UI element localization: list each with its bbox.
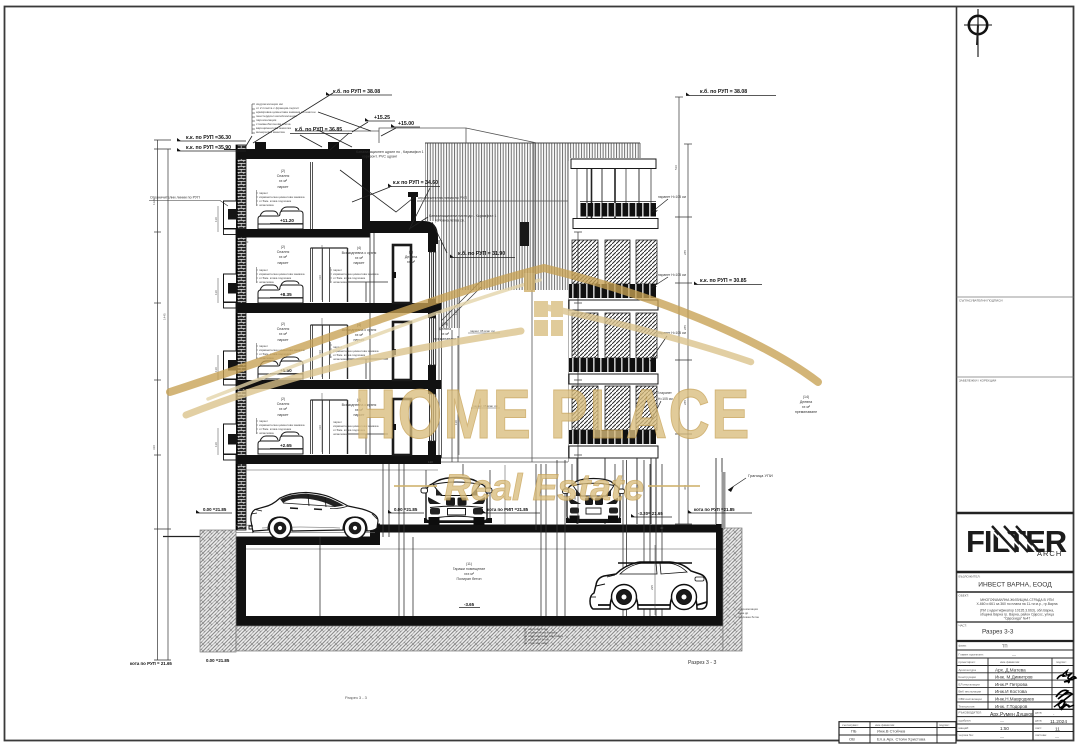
svg-text:—: — <box>1012 652 1016 657</box>
svg-text:съгласувал:: съгласувал: <box>842 723 859 727</box>
svg-text:ВиК инсталации: ВиК инсталации <box>959 690 982 694</box>
svg-text:(14): (14) <box>442 322 448 326</box>
svg-text:условна летва св.: условна летва св. <box>435 219 465 223</box>
svg-text:к.к. по РУП = 30.85: к.к. по РУП = 30.85 <box>700 278 747 284</box>
svg-text:110: 110 <box>454 310 458 315</box>
svg-text:Граница УПИ: Граница УПИ <box>748 473 773 478</box>
svg-text:ИНВЕСТ ВАРНА, ЕООД: ИНВЕСТ ВАРНА, ЕООД <box>978 582 1052 589</box>
svg-text:+2.65: +2.65 <box>280 443 292 448</box>
svg-text:Канализационни листи до - Кара: Канализационни листи до - Карамфил 1 <box>429 214 496 218</box>
svg-text:дата:: дата: <box>1035 711 1042 715</box>
svg-text:1:50: 1:50 <box>1000 726 1009 731</box>
svg-text:лист:: лист: <box>1035 726 1042 730</box>
svg-text:310: 310 <box>318 275 322 280</box>
svg-text:285: 285 <box>683 250 687 255</box>
svg-text:хх м²: хх м² <box>279 179 288 183</box>
svg-text:—: — <box>1000 719 1004 724</box>
svg-text:листове:: листове: <box>1035 733 1047 737</box>
svg-text:Канализационен щранг по , Кара: Канализационен щранг по , Карамфил 1 <box>356 150 424 154</box>
svg-text:110: 110 <box>214 290 218 295</box>
svg-text:хоризонт. PVC щранг: хоризонт. PVC щранг <box>362 155 398 159</box>
svg-text:подпис:: подпис: <box>939 723 950 727</box>
svg-text:к.б. по РУП = 38.08: к.б. по РУП = 38.08 <box>333 88 380 95</box>
svg-text:(4): (4) <box>409 250 413 254</box>
svg-text:(2): (2) <box>281 169 285 173</box>
svg-text:хх м²: хх м² <box>407 260 416 264</box>
svg-text:кота по РУП =21.85: кота по РУП =21.85 <box>694 507 735 512</box>
svg-text:парапет Н=105 см: парапет Н=105 см <box>658 195 687 199</box>
svg-text:к.б. по РУП = 38.08: к.б. по РУП = 38.08 <box>700 88 747 95</box>
svg-text:Инж.Р Петрова: Инж.Р Петрова <box>995 682 1028 687</box>
svg-text:+15.25: +15.25 <box>374 115 390 121</box>
svg-text:+15.00: +15.00 <box>398 121 414 127</box>
svg-text:310: 310 <box>152 445 156 450</box>
svg-text:кота по РУП = 21.65: кота по РУП = 21.65 <box>130 661 172 666</box>
svg-text:име фамилия:: име фамилия: <box>1000 660 1020 664</box>
svg-text:Инж. М.Димитров: Инж. М.Димитров <box>995 675 1033 680</box>
svg-text:HOME PLACE: HOME PLACE <box>355 375 751 453</box>
svg-text:шпакловка: шпакловка <box>333 280 348 284</box>
svg-text:подпис:: подпис: <box>1056 660 1067 664</box>
svg-text:Полиран бетон: Полиран бетон <box>456 577 481 581</box>
svg-text:фаза:: фаза: <box>959 644 967 648</box>
svg-text:Спалня: Спалня <box>277 174 290 178</box>
svg-text:110: 110 <box>214 217 218 222</box>
svg-text:-3.20= 21.65: -3.20= 21.65 <box>638 511 663 516</box>
svg-text:"Одесеида" №47: "Одесеида" №47 <box>1004 617 1031 621</box>
svg-text:40: 40 <box>660 526 664 530</box>
svg-text:Конструкции: Конструкции <box>959 675 977 679</box>
svg-text:285: 285 <box>573 350 577 355</box>
svg-text:уплътнен насип: уплътнен насип <box>528 641 549 645</box>
svg-text:к.к. по РУП =36.30: к.к. по РУП =36.30 <box>186 135 231 141</box>
svg-text:0.00 =21.85: 0.00 =21.85 <box>206 658 230 663</box>
svg-text:к.к по РУП = 34.60: к.к по РУП = 34.60 <box>393 180 438 186</box>
svg-text:преминаване: преминаване <box>795 410 817 414</box>
svg-text:Всекидневна с кухня: Всекидневна с кухня <box>342 251 377 255</box>
svg-text:—: — <box>1055 735 1059 740</box>
svg-text:проектирал:: проектирал: <box>959 660 976 664</box>
svg-text:Инж.В Стойчев: Инж.В Стойчев <box>877 729 905 734</box>
svg-text:310: 310 <box>318 425 322 430</box>
svg-text:чертеж No:: чертеж No: <box>959 733 974 737</box>
svg-text:Real Estate: Real Estate <box>444 467 644 508</box>
svg-text:ARCH: ARCH <box>1037 549 1062 558</box>
svg-text:+8.35: +8.35 <box>280 292 292 297</box>
svg-text:к.к. по РУП =35.90: к.к. по РУП =35.90 <box>186 145 231 151</box>
svg-text:РЪКОВОДИТЕЛ:: РЪКОВОДИТЕЛ: <box>959 711 983 715</box>
svg-text:X-660 и 661 за 360 по плана на: X-660 и 661 за 360 по плана на 11-ти м.р… <box>976 602 1057 606</box>
svg-text:име фамилия:: име фамилия: <box>875 723 895 727</box>
svg-text:110: 110 <box>214 442 218 447</box>
svg-text:одобрил:: одобрил: <box>959 719 972 723</box>
svg-text:Арх. Д.Матева: Арх. Д.Матева <box>995 667 1026 672</box>
svg-text:к.б. по РУП = 31.90: к.б. по РУП = 31.90 <box>458 250 505 257</box>
svg-text:Дневна: Дневна <box>439 327 451 331</box>
svg-text:Разрез 3 - 3: Разрез 3 - 3 <box>688 660 716 666</box>
svg-text:ОВК инсталации: ОВК инсталации <box>959 697 983 701</box>
svg-text:Инж.Н.Мавродиев: Инж.Н.Мавродиев <box>995 697 1034 702</box>
svg-text:мащаб:: мащаб: <box>959 726 970 730</box>
svg-text:Инж.И Костова: Инж.И Костова <box>995 689 1027 694</box>
svg-text:ОБЕКТ:: ОБЕКТ: <box>959 594 970 598</box>
svg-text:-: - <box>1053 712 1055 717</box>
svg-text:хх м²: хх м² <box>802 405 811 409</box>
svg-text:паркет: паркет <box>277 185 288 189</box>
svg-text:Инж. Г.Тодоров: Инж. Г.Тодоров <box>995 704 1028 709</box>
svg-text:СЪГЛАСУВАТЕЛНИ ПОДПИСИ: СЪГЛАСУВАТЕЛНИ ПОДПИСИ <box>959 299 1003 303</box>
svg-text:Технология: Технология <box>959 704 975 708</box>
svg-text:ЗАБЕЛЕЖКИ / КОРЕКЦИИ: ЗАБЕЛЕЖКИ / КОРЕКЦИИ <box>959 379 996 383</box>
svg-text:дата:: дата: <box>1035 719 1042 723</box>
svg-text:Архитектура: Архитектура <box>959 668 977 672</box>
svg-text:0.00 =21.85: 0.00 =21.85 <box>394 507 418 512</box>
svg-text:ограничителна линия по РУП: ограничителна линия по РУП <box>418 196 467 200</box>
svg-text:ЕЛ инсталации: ЕЛ инсталации <box>959 682 980 686</box>
svg-text:Разрез 3 - 3: Разрез 3 - 3 <box>345 695 368 700</box>
svg-text:285: 285 <box>683 325 687 330</box>
svg-text:1445: 1445 <box>163 313 167 320</box>
svg-text:паркет: паркет <box>353 261 364 265</box>
svg-text:(4): (4) <box>357 246 361 250</box>
svg-text:хх м²: хх м² <box>355 256 364 260</box>
svg-text:хх м²: хх м² <box>441 332 450 336</box>
svg-text:Ел.а Арх. Стоян Христова: Ел.а Арх. Стоян Христова <box>877 737 926 742</box>
svg-text:Дневна: Дневна <box>405 255 417 259</box>
svg-text:(11): (11) <box>466 562 472 566</box>
svg-text:Ограничителни линии по РУП: Ограничителни линии по РУП <box>150 196 200 200</box>
svg-text:0.00 =21.85: 0.00 =21.85 <box>203 507 227 512</box>
svg-text:110: 110 <box>428 460 433 464</box>
svg-text:-3.65: -3.65 <box>464 602 475 607</box>
svg-text:(14): (14) <box>803 395 809 399</box>
svg-text:ххх м²: ххх м² <box>464 572 475 576</box>
svg-text:Гаражи помещение: Гаражи помещение <box>453 567 485 571</box>
svg-text:подложен бетон: подложен бетон <box>738 615 759 619</box>
svg-text:—: — <box>1000 734 1004 739</box>
svg-text:ОВ: ОВ <box>849 737 855 742</box>
svg-text:60: 60 <box>245 240 249 244</box>
svg-text:Главен проектант:: Главен проектант: <box>959 653 985 657</box>
svg-text:ВЪЗЛОЖИТЕЛ:: ВЪЗЛОЖИТЕЛ: <box>959 575 981 579</box>
svg-text:ЧАСТ:: ЧАСТ: <box>959 624 968 628</box>
svg-text:Дневна: Дневна <box>800 400 812 404</box>
svg-text:к.б. по РУП = 36.85: к.б. по РУП = 36.85 <box>295 126 342 133</box>
svg-text:510: 510 <box>674 165 678 170</box>
svg-text:шпакловка: шпакловка <box>259 203 274 207</box>
svg-text:Разрез 3-3: Разрез 3-3 <box>982 629 1014 636</box>
svg-text:парапет Н=105 см: парапет Н=105 см <box>658 273 687 277</box>
svg-text:ПБ: ПБ <box>851 729 857 734</box>
svg-text:295: 295 <box>650 585 654 590</box>
svg-text:ТП: ТП <box>1002 644 1008 649</box>
svg-text:+11.20: +11.20 <box>280 218 294 223</box>
svg-text:110: 110 <box>214 367 218 372</box>
